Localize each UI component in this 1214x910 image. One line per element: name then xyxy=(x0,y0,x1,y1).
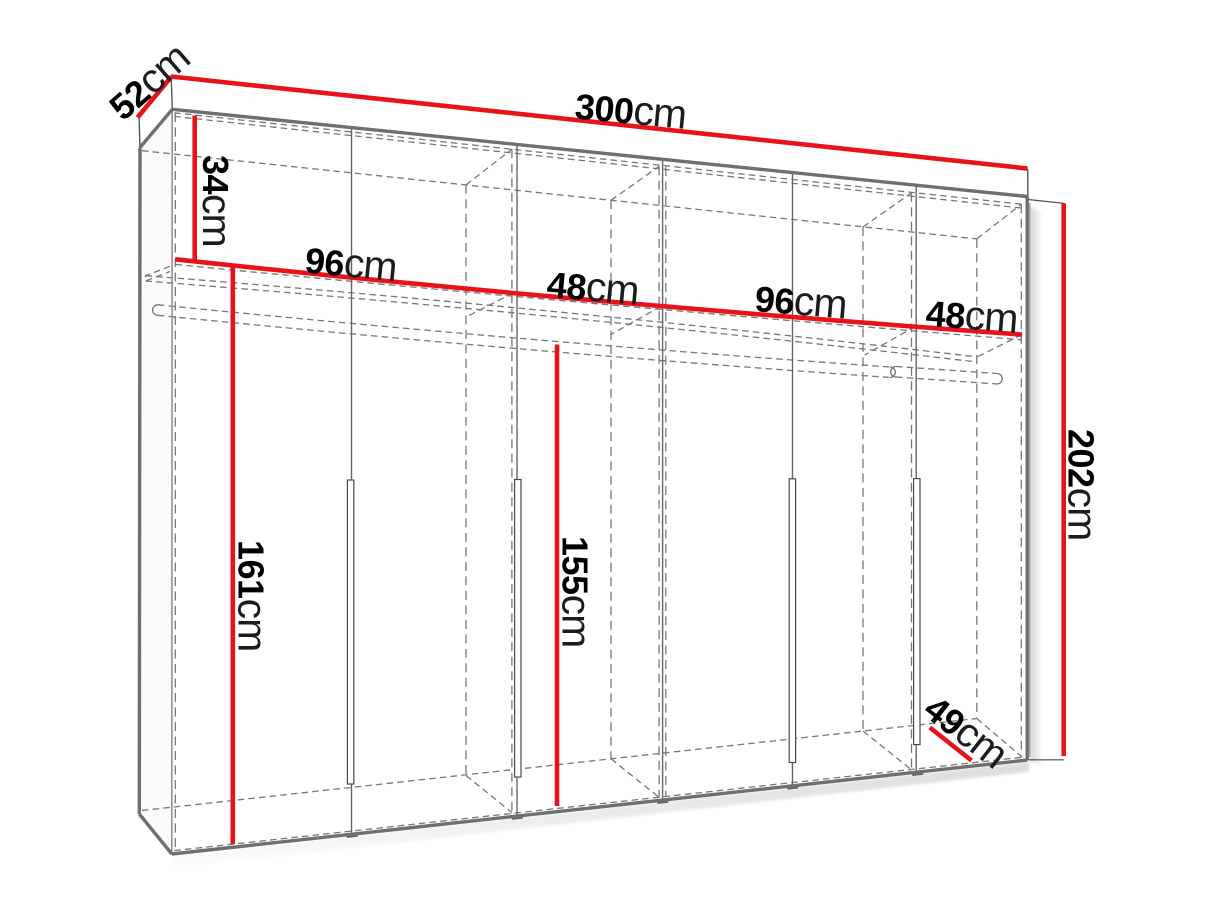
svg-text:48cm: 48cm xyxy=(545,260,640,314)
svg-text:48cm: 48cm xyxy=(924,289,1019,342)
svg-text:155cm: 155cm xyxy=(554,536,600,647)
svg-text:202cm: 202cm xyxy=(1060,429,1106,540)
svg-text:34cm: 34cm xyxy=(194,155,240,247)
svg-text:96cm: 96cm xyxy=(753,274,848,328)
svg-text:161cm: 161cm xyxy=(230,540,276,651)
